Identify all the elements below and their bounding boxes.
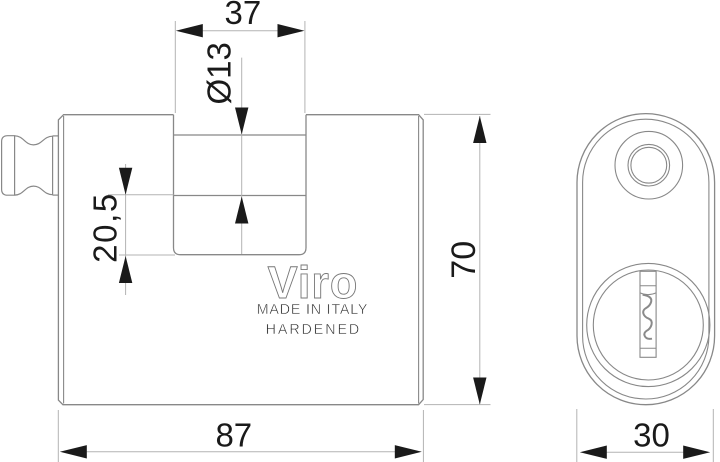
svg-text:70: 70 xyxy=(445,241,483,279)
svg-text:20,5: 20,5 xyxy=(87,192,124,263)
svg-text:87: 87 xyxy=(215,416,252,453)
svg-text:HARDENED: HARDENED xyxy=(266,322,361,338)
svg-text:Ø13: Ø13 xyxy=(201,42,238,104)
svg-text:MADE IN ITALY: MADE IN ITALY xyxy=(257,302,369,318)
svg-text:37: 37 xyxy=(225,0,262,31)
svg-text:Viro: Viro xyxy=(268,257,359,308)
svg-text:30: 30 xyxy=(633,416,670,453)
